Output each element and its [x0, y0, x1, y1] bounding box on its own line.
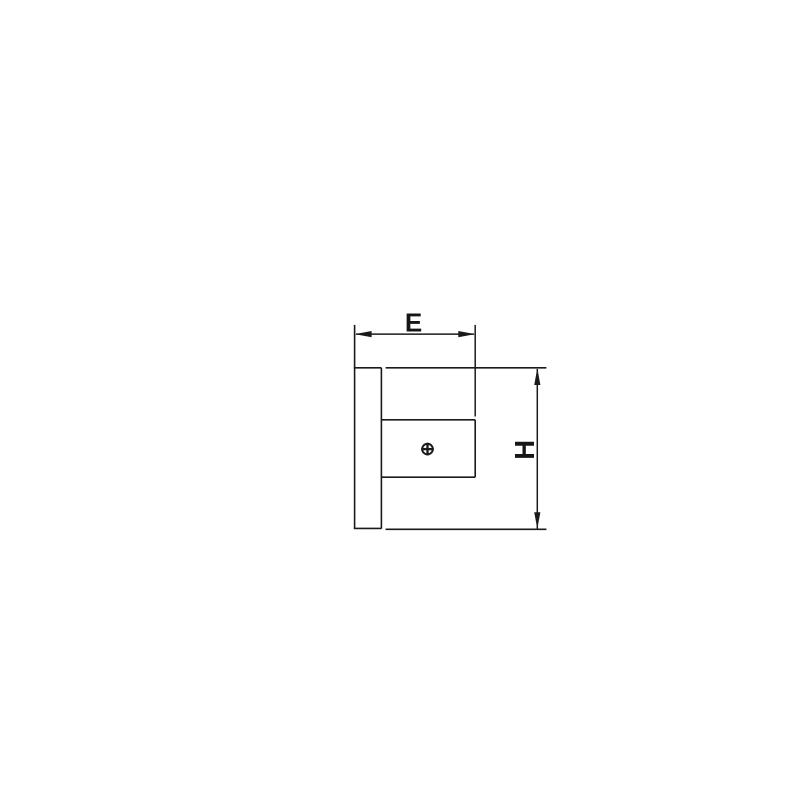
- svg-text:H: H: [509, 440, 540, 460]
- svg-text:E: E: [405, 307, 422, 337]
